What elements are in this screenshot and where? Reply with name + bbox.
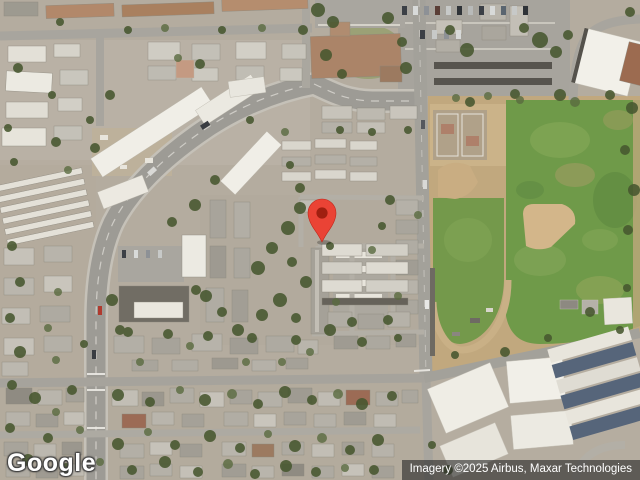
cross-street-1 [0, 378, 424, 383]
dark-roof-building [119, 286, 189, 322]
pin-dot-icon [316, 207, 327, 218]
tennis-courts [433, 110, 487, 160]
pin-shadow [317, 240, 331, 245]
google-logo[interactable]: Google [7, 449, 96, 478]
map-viewport[interactable]: Google Imagery ©2025 Airbus, Maxar Techn… [0, 0, 640, 480]
imagery-attribution: Imagery ©2025 Airbus, Maxar Technologies [402, 460, 640, 480]
pin-body-icon [308, 199, 336, 242]
storage-units [282, 139, 377, 181]
map-pin[interactable] [306, 198, 338, 245]
